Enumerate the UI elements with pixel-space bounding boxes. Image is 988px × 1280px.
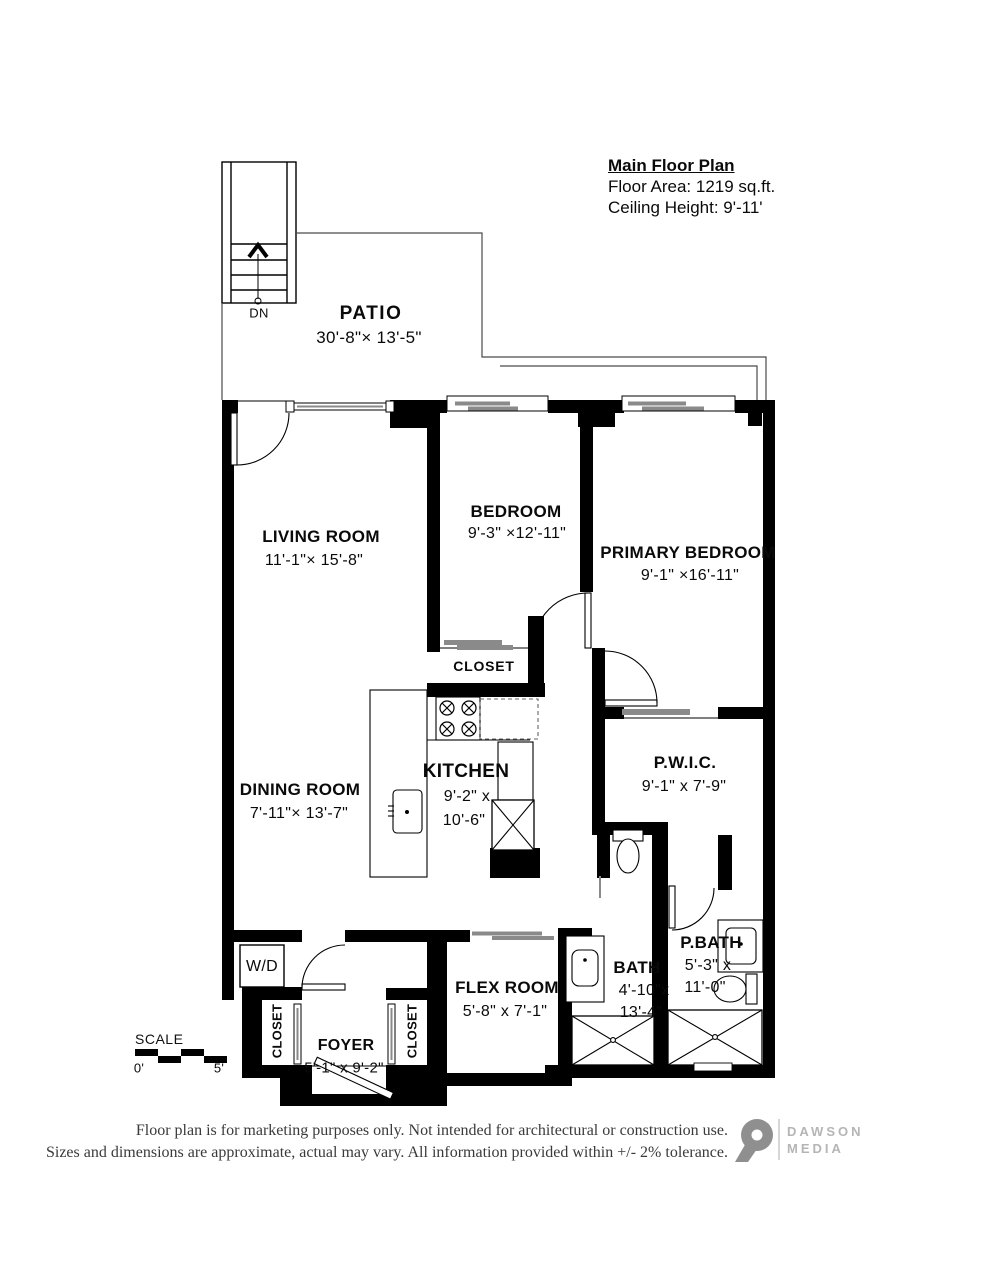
room-dims-patio: 30'-8"× 13'-5": [316, 328, 421, 348]
room-dims-flex: 5'-8" x 7'-1": [463, 1003, 548, 1021]
flex-room-window: [472, 932, 542, 936]
title-block: Main Floor Plan Floor Area: 1219 sq.ft. …: [608, 155, 775, 218]
floor-area: Floor Area: 1219 sq.ft.: [608, 176, 775, 197]
room-label-foyer: FOYER: [318, 1037, 375, 1055]
room-label-dining: DINING ROOM: [240, 780, 360, 800]
room-dims-kitchen-2: 10'-6": [443, 812, 486, 830]
room-label-pbath: P.BATH: [680, 933, 742, 953]
disclaimer-line-1: Floor plan is for marketing purposes onl…: [46, 1120, 728, 1142]
room-dims-pbath-2: 11'-0": [684, 979, 725, 997]
kitchen-pantry: [492, 800, 534, 850]
living-room-entry-door: [231, 413, 289, 465]
kitchen-peninsula: [370, 690, 427, 877]
room-dims-primary: 9'-1" ×16'-11": [641, 567, 739, 585]
room-label-foyer-closet-right: CLOSET: [405, 1004, 420, 1059]
disclaimer-line-2: Sizes and dimensions are approximate, ac…: [46, 1142, 728, 1164]
staircase: [222, 162, 296, 304]
primary-bedroom-door: [605, 651, 657, 706]
logo-name-line1: DAWSON: [787, 1123, 864, 1140]
pbath-shower: [668, 1010, 762, 1065]
logo-name-line2: MEDIA: [787, 1140, 864, 1157]
room-label-bedroom-closet: CLOSET: [453, 658, 515, 674]
room-label-primary: PRIMARY BEDROOM: [600, 543, 775, 563]
pbath-shower-curb: [694, 1063, 732, 1071]
room-label-foyer-closet-left: CLOSET: [270, 1004, 285, 1059]
room-label-flex: FLEX ROOM: [455, 978, 559, 998]
room-dims-pwic: 9'-1" x 7'-9": [642, 778, 727, 796]
room-label-kitchen: KITCHEN: [423, 761, 510, 783]
pbath-door: [669, 886, 714, 930]
room-dims-bedroom: 9'-3" ×12'-11": [468, 525, 566, 543]
floor-plan-drawing: [0, 0, 988, 1280]
stairs-down-label: DN: [249, 306, 268, 321]
room-dims-living: 11'-1"× 15'-8": [265, 552, 363, 570]
scale-min: 0': [134, 1061, 144, 1076]
floor-plan-page: Main Floor Plan Floor Area: 1219 sq.ft. …: [0, 0, 988, 1280]
patio-outline: [222, 233, 766, 400]
ceiling-height: Ceiling Height: 9'-11': [608, 197, 775, 218]
dawson-media-logo-icon: [735, 1119, 779, 1162]
room-label-pwic: P.W.I.C.: [654, 753, 717, 773]
room-dims-kitchen-1: 9'-2" x: [444, 788, 490, 806]
bath-vanity: [566, 936, 604, 1002]
room-label-living: LIVING ROOM: [262, 527, 380, 547]
room-dims-dining: 7'-11"× 13'-7": [250, 805, 348, 823]
room-label-wd: W/D: [246, 958, 278, 976]
room-dims-pbath-1: 5'-3" x: [685, 957, 731, 975]
bath-toilet: [613, 830, 643, 873]
scale-max: 5': [214, 1061, 224, 1076]
room-label-bedroom: BEDROOM: [471, 502, 562, 522]
room-dims-bath-1: 4'-10"x: [619, 982, 670, 1000]
room-label-bath: BATH: [613, 958, 660, 978]
dawson-media-logo-text: DAWSON MEDIA: [787, 1123, 864, 1157]
kitchen-fixtures: [370, 690, 538, 877]
room-label-patio: PATIO: [340, 303, 403, 325]
bath-shower: [572, 1016, 654, 1065]
page-title: Main Floor Plan: [608, 155, 775, 176]
upper-cabinets-dashed: [480, 699, 538, 739]
wd-door: [302, 945, 345, 990]
room-dims-foyer: 5'-1" x 9'-2": [304, 1060, 383, 1077]
room-dims-bath-2: 13'-4": [620, 1004, 663, 1022]
scale-label: SCALE: [135, 1031, 183, 1047]
disclaimer: Floor plan is for marketing purposes onl…: [46, 1120, 728, 1163]
kitchen-sink: [388, 790, 422, 833]
